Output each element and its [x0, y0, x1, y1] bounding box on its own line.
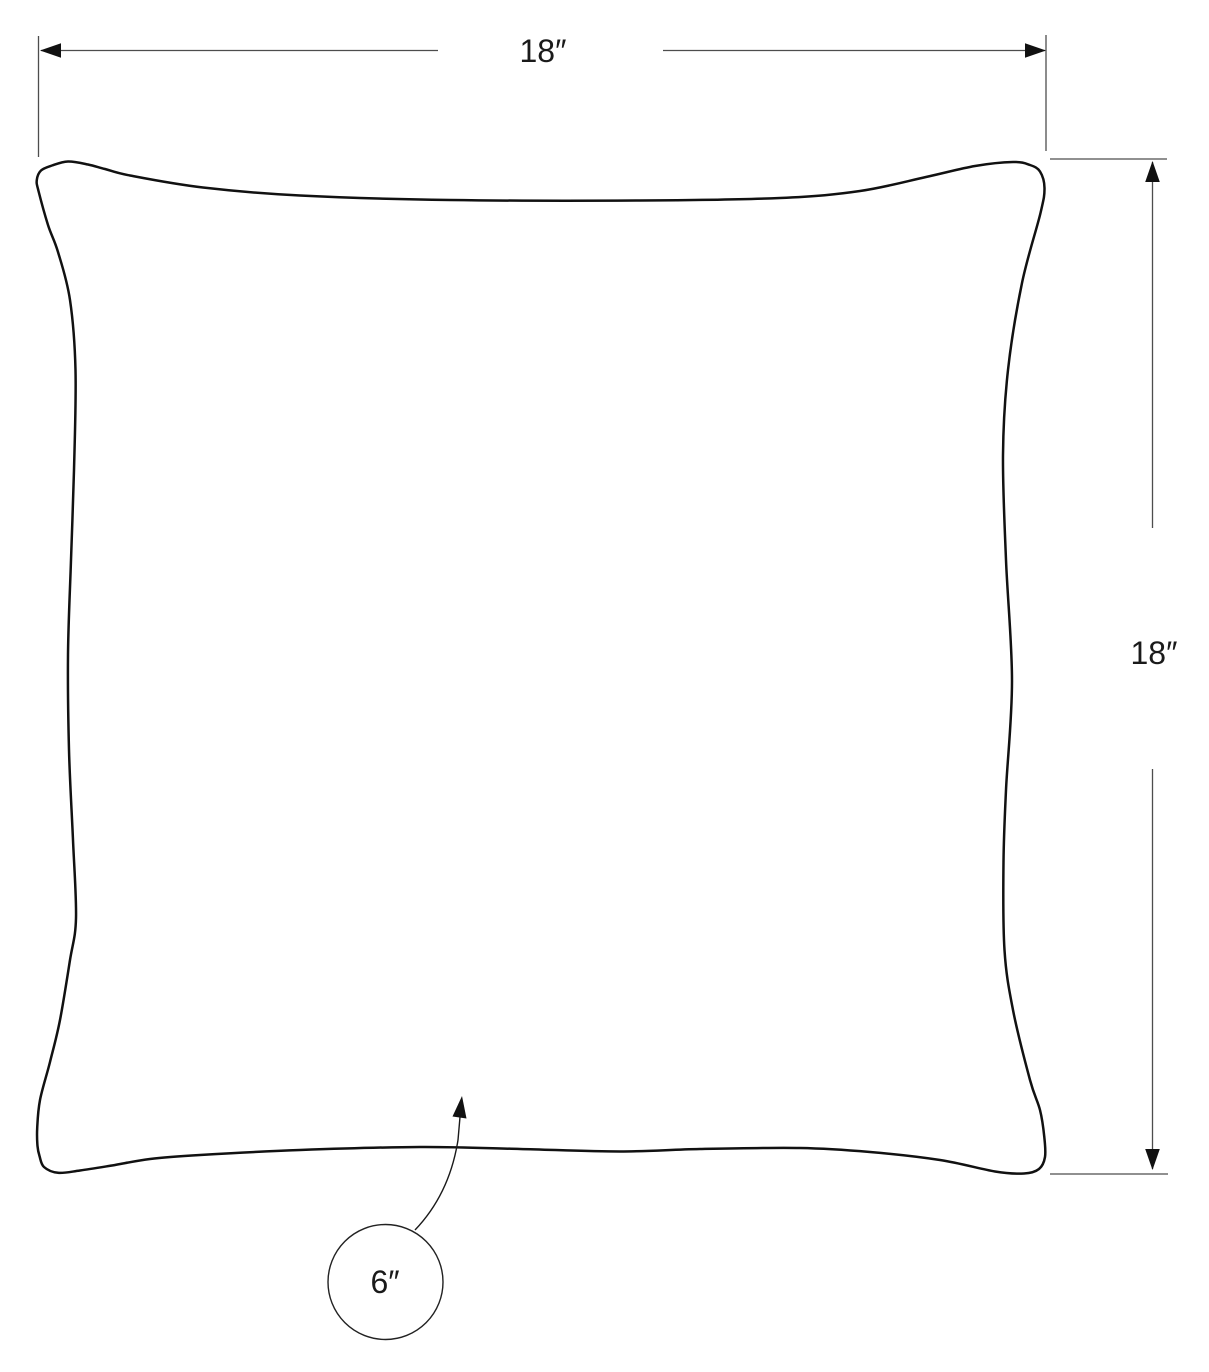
svg-text:18″: 18″ [1131, 635, 1178, 671]
svg-text:6″: 6″ [371, 1264, 400, 1300]
svg-text:18″: 18″ [520, 33, 567, 69]
